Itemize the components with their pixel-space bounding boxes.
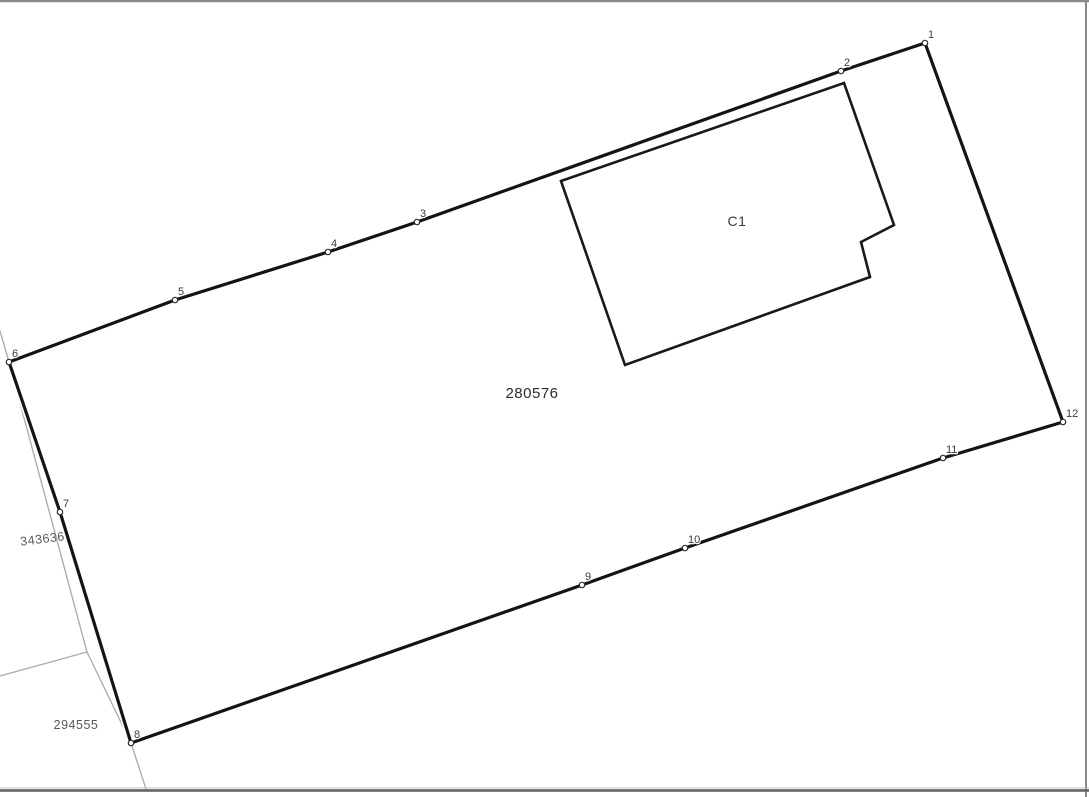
vertex-label-2: 2: [844, 57, 850, 69]
parcel-number-label: 280576: [505, 385, 558, 402]
vertex-marker-12: [1060, 419, 1065, 424]
vertex-label-10: 10: [688, 534, 700, 546]
vertex-marker-1: [922, 40, 927, 45]
map-canvas[interactable]: 123456789101112280576C1343636294555: [0, 0, 1089, 797]
vertex-label-4: 4: [331, 238, 337, 250]
building-label: C1: [728, 213, 747, 229]
vertex-label-12: 12: [1066, 408, 1078, 420]
vertex-label-6: 6: [12, 348, 18, 360]
vertex-marker-4: [325, 249, 330, 254]
vertex-marker-7: [57, 509, 62, 514]
vertex-marker-8: [128, 740, 133, 745]
vertex-marker-6: [6, 359, 11, 364]
vertex-label-5: 5: [178, 286, 184, 298]
vertex-label-9: 9: [585, 571, 591, 583]
vertex-marker-10: [682, 545, 687, 550]
vertex-marker-11: [940, 455, 945, 460]
neighbor-parcel-label-294555: 294555: [54, 718, 99, 732]
vertex-marker-2: [838, 68, 843, 73]
vertex-marker-3: [414, 219, 419, 224]
vertex-marker-9: [579, 582, 584, 587]
vertex-label-7: 7: [63, 498, 69, 510]
cadastral-map-frame: 123456789101112280576C1343636294555: [0, 0, 1089, 797]
vertex-label-3: 3: [420, 208, 426, 220]
vertex-label-1: 1: [928, 29, 934, 41]
vertex-marker-5: [172, 297, 177, 302]
vertex-label-11: 11: [946, 444, 957, 456]
vertex-label-8: 8: [134, 729, 140, 741]
